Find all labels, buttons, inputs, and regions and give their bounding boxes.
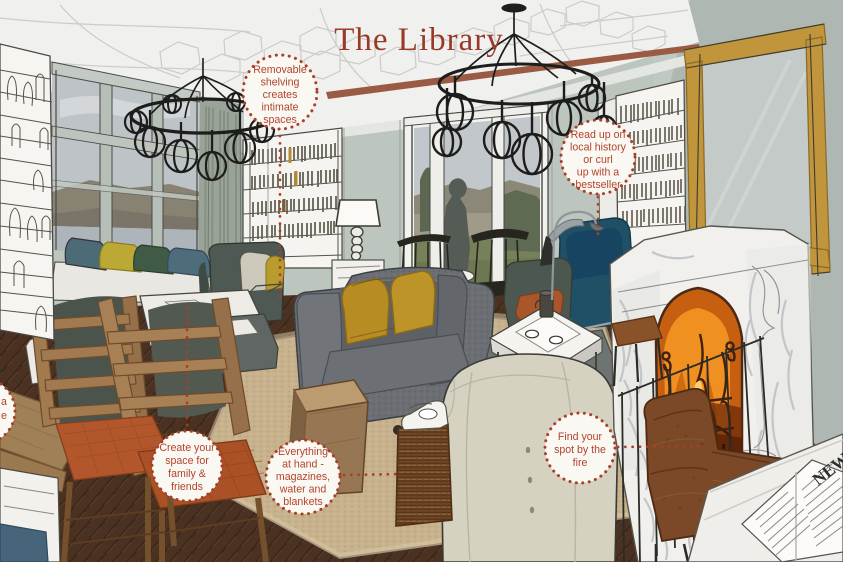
svg-text:bestseller: bestseller — [575, 179, 621, 191]
svg-text:Read up on: Read up on — [571, 129, 626, 141]
svg-text:The Library: The Library — [334, 22, 504, 58]
svg-text:friends: friends — [171, 481, 203, 493]
svg-text:local history: local history — [570, 142, 627, 154]
svg-text:creates: creates — [263, 89, 298, 101]
svg-text:Find your: Find your — [558, 431, 603, 443]
svg-text:shelving: shelving — [261, 77, 300, 89]
svg-text:or curl: or curl — [583, 154, 612, 166]
svg-text:space for: space for — [165, 455, 209, 467]
svg-text:spot by the: spot by the — [554, 444, 606, 456]
svg-text:e: e — [1, 410, 7, 422]
svg-text:blankets: blankets — [283, 496, 322, 508]
svg-text:up with a: up with a — [577, 167, 620, 179]
svg-text:magazines,: magazines, — [276, 471, 330, 483]
svg-text:intimate: intimate — [261, 102, 298, 114]
svg-text:Create your: Create your — [159, 442, 215, 454]
svg-text:family &: family & — [168, 468, 206, 480]
svg-text:at hand -: at hand - — [282, 459, 324, 471]
svg-text:spaces: spaces — [263, 114, 297, 126]
svg-text:a: a — [1, 396, 7, 408]
svg-text:Everything: Everything — [278, 446, 328, 458]
svg-text:fire: fire — [573, 457, 588, 469]
svg-text:water and: water and — [279, 484, 327, 496]
svg-text:Removable: Removable — [253, 64, 307, 76]
